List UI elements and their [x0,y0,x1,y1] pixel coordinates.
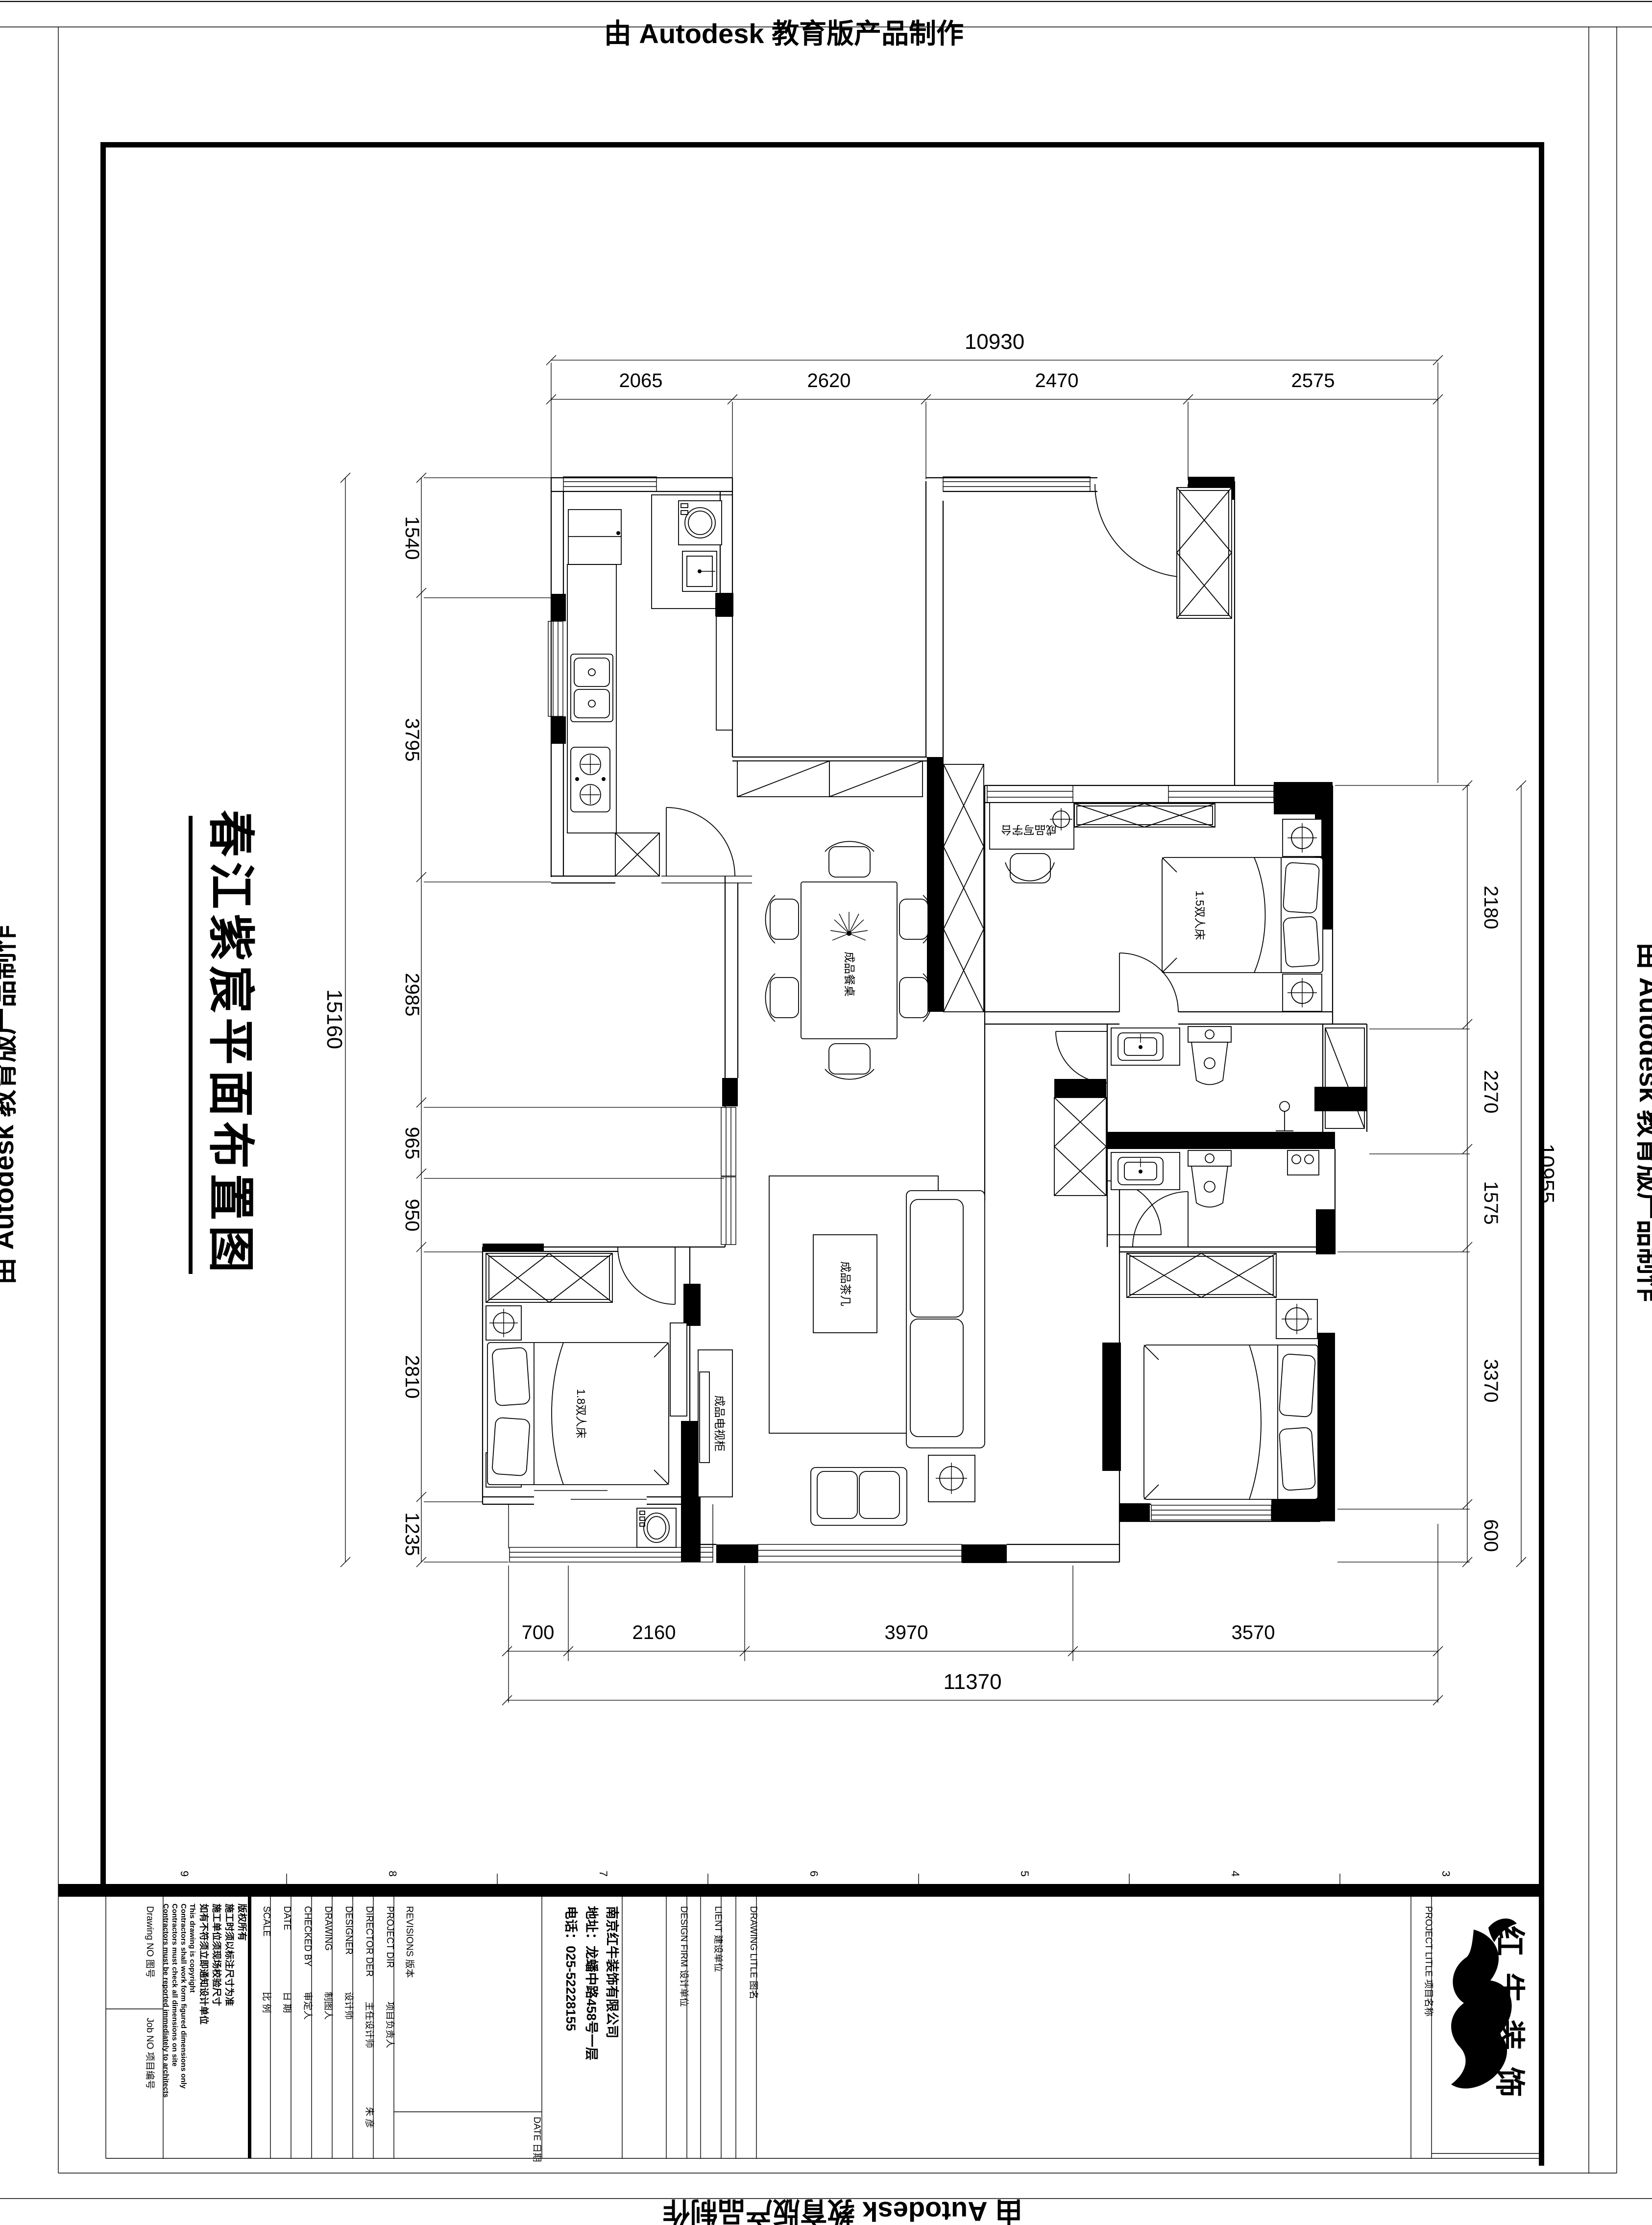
bathrooms [1054,1027,1364,1207]
field-director-en: DIRECTOR DER [364,1906,374,1977]
sheet-title: 春江紫宸平面布置图 [189,810,257,1277]
svg-text:版权所有: 版权所有 [237,1904,248,1941]
dim-left-2: 2985 [401,973,423,1017]
shoe-cabinet-a [737,761,829,797]
titleblock-band [58,1884,1544,1897]
dim-bottom-3: 3570 [1232,1622,1275,1643]
svg-text:Contractors shall work form fi: Contractors shall work form figured dime… [179,1904,188,2089]
window-bedroom2-bottom [1151,1505,1271,1520]
vanity-bath1 [1111,1028,1180,1065]
window-dining-left-b [721,1177,736,1245]
window-living-bottom [758,1544,962,1562]
tv-cabinet-label: 成品电视柜 [713,1395,726,1452]
dim-chain-right: 10955 2180 2270 1575 3370 600 [1335,781,1558,1567]
sheet-title-underline [189,816,193,1274]
vanity-bath2 [1111,1152,1180,1190]
kitchen [567,495,732,876]
grid-3: 3 [1440,1871,1452,1877]
dim-right-4: 600 [1480,1519,1502,1552]
dim-left-0: 1540 [401,516,423,560]
dining-set: 成品餐桌 [765,841,932,1079]
dim-right-0: 2180 [1480,886,1502,929]
field-drawing-zh: 制图人 [323,1992,334,2020]
dim-right-3: 3370 [1480,1359,1502,1403]
side-table-lamp [928,1455,975,1502]
grid-5: 5 [1019,1871,1031,1877]
banner-bottom: 由 Autodesk 教育版产品制作 [663,2196,1022,2225]
bed-bedroom2 [1144,1345,1318,1499]
coffee-table-label: 成品茶几 [839,1261,852,1306]
dim-left-6: 1235 [401,1513,423,1556]
dim-left-3: 965 [401,1127,423,1160]
double-sink [571,654,613,722]
dim-top-3: 2575 [1291,370,1335,391]
dim-right-2: 1575 [1480,1181,1502,1225]
bed-big-label: 1.8双人床 [575,1389,587,1439]
faucet-symbol [1276,1101,1293,1131]
field-scale-zh: 比 例 [261,1992,272,2013]
door-master [618,1247,675,1304]
fridge [568,510,621,564]
dim-bottom-2: 3970 [885,1622,928,1643]
desk: 成品写字台 [990,803,1074,849]
kitchen-sink-small [682,551,717,591]
door-kitchen [666,807,735,876]
dim-left-1: 3795 [401,718,423,762]
frame-left [100,142,106,1889]
window-dining-left-a [721,1107,736,1176]
svg-text:This drawing is copyright: This drawing is copyright [188,1904,196,1993]
dim-bottom-total: 11370 [943,1670,1001,1694]
wardrobe-bedroom1 [1074,804,1215,827]
field-rev-date: DATE 日期 [532,2117,542,2162]
svg-text:施工时须以标注尺寸为准: 施工时须以标注尺寸为准 [224,1904,235,2006]
field-designer-en: DESIGNER [343,1906,354,1955]
field-date-zh: 日 期 [282,1992,292,2013]
field-checked-en: CHECKED BY [302,1906,313,1967]
bedroom2 [1127,1253,1318,1499]
grid-numbers: 9 8 7 6 5 4 3 [178,1871,1452,1884]
field-checked-zh: 审定人 [302,1992,313,2020]
copyright-notes: 版权所有 施工时须以标注尺寸为准 施工单位须现场校验尺寸 如有不符须立即通知设计… [162,1904,248,2098]
sheet-title-text: 春江紫宸平面布置图 [204,810,257,1277]
window-bedroom1-a [987,785,1073,803]
wardrobe-bedroom2 [1127,1253,1276,1297]
window-entry-top [943,477,1090,491]
field-projectdir-zh: 项目负责人 [385,2002,395,2048]
sofa-loveseat [811,1467,907,1525]
grid-4: 4 [1229,1871,1241,1877]
company-phone: 电话：025-52228155 [563,1906,578,2031]
master-bedroom: 1.8双人床 [486,1253,687,1547]
dim-bottom-1: 2160 [632,1622,676,1643]
grid-7: 7 [597,1871,609,1877]
dim-bottom-0: 700 [522,1622,555,1643]
flue-box [615,833,659,876]
field-scale-en: SCALE [261,1906,271,1936]
field-project-title: PROJECT LITLE 项目名称 [1423,1906,1434,2017]
frame-top [100,142,1544,147]
dim-right-total: 10955 [1534,1144,1558,1203]
tv-cabinet: 成品电视柜 [698,1350,732,1497]
door-bedroom2 [1133,1192,1188,1247]
coffee-table: 成品茶几 [813,1235,877,1333]
washer-box-bath2 [1288,1150,1319,1175]
field-client: LIENT 建设单位 [713,1906,724,1972]
nightstand-b1-bottom [1283,974,1322,1011]
window-kitchen-left [548,621,563,716]
nightstand-m-top [486,1306,521,1340]
dim-left-5: 2810 [401,1355,423,1399]
dim-top-total: 10930 [965,330,1024,354]
field-director-zh: 主任设计师 [364,2002,375,2048]
bed-small-label: 1.5双人床 [1193,891,1206,940]
cad-canvas: 由 Autodesk 教育版产品制作 由 Autodesk 教育版产品制作 由 … [0,0,1652,2225]
toilet-bath2 [1188,1150,1231,1207]
banner-right: 由 Autodesk 教育版产品制作 [1634,942,1652,1302]
svg-text:施工单位须现场校验尺寸: 施工单位须现场校验尺寸 [211,1904,222,2006]
company-address: 地址：龙蟠中路458号一层 [584,1906,599,2060]
field-designer-zh: 设计师 [343,1992,354,2020]
svg-text:Contractors must be reported i: Contractors must be reported immediately… [162,1904,170,2098]
dining-table-label: 成品餐桌 [843,952,856,997]
banner-left: 由 Autodesk 教育版产品制作 [0,925,19,1285]
title-block: Drawing NO 图号 Job NO 项目编号 版权所有 施工时须以标注尺寸… [106,1897,1539,2162]
field-projectdir-en: PROJECT DIR [385,1906,395,1968]
sofa-main [906,1191,985,1448]
svg-text:Contractors must check all dim: Contractors must check all dimensions on… [170,1904,179,2067]
gas-stove [571,747,610,812]
entry-closet [1177,488,1232,618]
company-info: 南京红牛装饰有限公司 地址：龙蟠中路458号一层 电话：025-52228155 [563,1906,620,2060]
svg-text:如有不符须立即通知设计单位: 如有不符须立即通知设计单位 [198,1904,210,2025]
window-bedroom1-b [1168,785,1274,803]
shower-bath1 [1325,1028,1364,1128]
washing-machine-balcony [637,1508,676,1547]
window-kitchen-top [563,477,656,491]
banner-top: 由 Autodesk 教育版产品制作 [604,18,964,49]
bed-small: 1.5双人床 [1162,857,1323,973]
field-design-firm: DESIGN FIRM 设计单位 [679,1906,689,2007]
nightstand-b2 [1276,1299,1317,1339]
field-revisions: REVISIONS 版本 [404,1906,415,1978]
nightstand-b1-top [1283,819,1322,856]
grid-6: 6 [808,1871,820,1877]
dim-top-1: 2620 [807,370,851,391]
bed-master: 1.8双人床 [487,1343,669,1485]
wardrobe-master [486,1253,612,1302]
field-drawing-no: Drawing NO 图号 [145,1906,155,1978]
dim-left-total: 15160 [322,989,346,1049]
field-director-value: 朱 彦 [364,2107,375,2128]
company-logo: 红牛装饰 [1451,1919,1526,2114]
dresser [670,1323,687,1416]
field-drawing-title: DRAWING LITLE 图名 [748,1906,759,1999]
kitchen-tall-cabinet [716,616,732,730]
shoe-cabinet-b [829,761,923,797]
dim-top-0: 2065 [619,370,663,391]
field-date-en: DATE [282,1906,292,1930]
company-name: 南京红牛装饰有限公司 [605,1906,620,2038]
bedroom1: 成品写字台 1.5双人床 [990,803,1323,1011]
door-bath1 [1056,1031,1107,1083]
lobby-cabinet [1054,1098,1106,1196]
desk-chair [1005,854,1054,883]
dim-left-4: 950 [401,1199,423,1232]
grid-8: 8 [387,1871,399,1877]
field-job-no: Job NO 项目编号 [145,2018,155,2089]
toilet-bath1 [1188,1027,1231,1085]
hall-closet [944,764,984,1012]
grid-9: 9 [178,1871,191,1877]
door-entry [1095,484,1188,577]
dim-top-2: 2470 [1035,370,1079,391]
dim-chain-top: 10930 2065 2620 2470 2575 [546,330,1443,783]
desk-label: 成品写字台 [1001,824,1057,836]
drawing-sheet: 由 Autodesk 教育版产品制作 由 Autodesk 教育版产品制作 由 … [0,0,1652,2225]
washing-machine-kitchen [679,501,722,545]
dim-right-1: 2270 [1480,1070,1502,1114]
field-drawing-en: DRAWING [323,1906,333,1951]
